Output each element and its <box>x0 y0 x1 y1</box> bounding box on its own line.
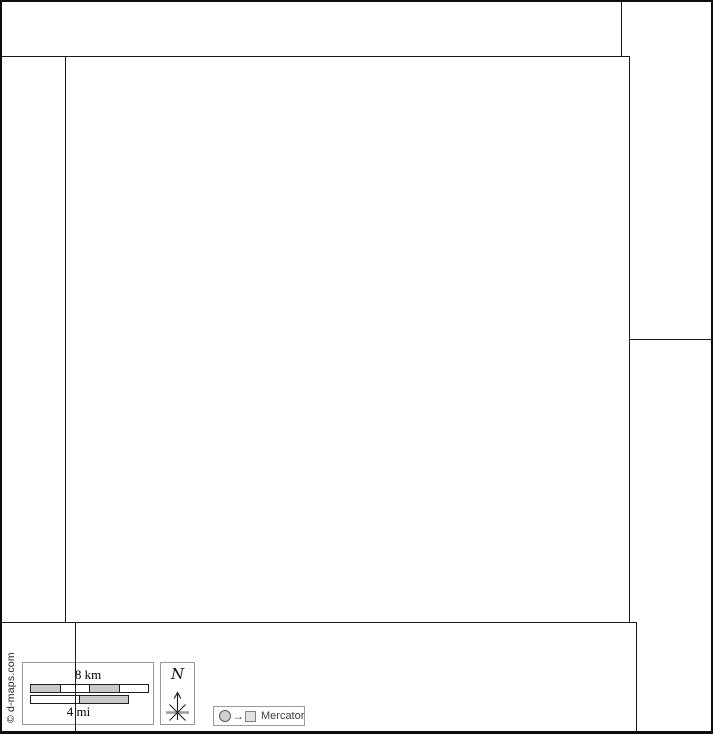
projection-arrow-icon: → <box>232 710 244 722</box>
map-canvas: © d-maps.com 8 km 4 mi N → Mercator <box>0 0 713 734</box>
bottom-right-vertical-boundary <box>636 622 637 734</box>
scale-km-bar-segment <box>31 685 60 692</box>
bottom-left-vertical-boundary <box>75 622 76 731</box>
scale-mi-bar <box>30 695 129 704</box>
top-right-vertical-boundary <box>621 0 622 57</box>
projection-square-icon <box>245 711 256 722</box>
projection-circle-icon <box>219 710 231 722</box>
scale-mi-bar-segment <box>31 696 79 703</box>
projection-label: Mercator <box>261 710 304 722</box>
compass-rose-icon <box>161 663 194 724</box>
bottom-boundary-line <box>0 622 637 623</box>
scale-mi-bar-segment <box>79 696 128 703</box>
scale-mi-label: 4 mi <box>23 704 134 720</box>
scale-km-bar-segment <box>119 685 149 692</box>
scale-box: 8 km 4 mi <box>22 662 154 725</box>
scale-km-bar <box>30 684 149 693</box>
scale-km-label: 8 km <box>23 667 153 683</box>
projection-legend: → Mercator <box>213 706 305 726</box>
scale-km-bar-segment <box>89 685 119 692</box>
main-region-boundary <box>65 56 630 623</box>
compass-box: N <box>160 662 195 725</box>
right-divider-boundary <box>629 339 713 340</box>
copyright-text: © d-maps.com <box>5 652 17 723</box>
